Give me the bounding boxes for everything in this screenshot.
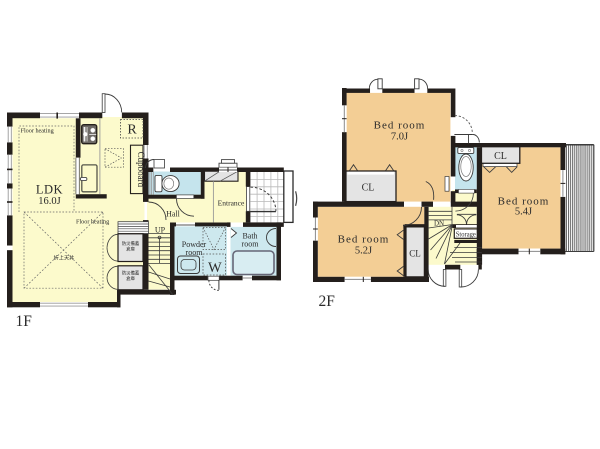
svg-text:CL: CL	[409, 249, 421, 259]
svg-text:2F: 2F	[319, 293, 336, 310]
svg-text:W: W	[208, 260, 222, 276]
svg-text:Hall: Hall	[166, 210, 181, 219]
svg-text:Floor heating: Floor heating	[21, 128, 54, 135]
svg-text:R: R	[127, 123, 137, 138]
svg-text:Storage: Storage	[456, 231, 476, 239]
svg-text:Cupboard: Cupboard	[136, 152, 146, 188]
svg-text:UP: UP	[155, 226, 166, 235]
svg-text:倉庫: 倉庫	[126, 246, 135, 253]
svg-text:折上天井: 折上天井	[54, 254, 75, 262]
svg-text:7.0J: 7.0J	[391, 132, 408, 143]
svg-text:Floor heating: Floor heating	[76, 219, 109, 226]
svg-text:LDK: LDK	[36, 182, 63, 196]
svg-text:CL: CL	[494, 151, 507, 162]
svg-text:DN: DN	[434, 220, 444, 228]
svg-text:Entrance: Entrance	[218, 199, 245, 208]
svg-text:room: room	[242, 240, 260, 249]
svg-text:5.2J: 5.2J	[355, 246, 372, 257]
svg-text:倉庫: 倉庫	[126, 275, 135, 282]
svg-text:room: room	[186, 248, 204, 257]
svg-text:16.0J: 16.0J	[38, 196, 60, 207]
svg-text:5.4J: 5.4J	[515, 207, 532, 218]
svg-text:CL: CL	[362, 183, 375, 194]
svg-text:1F: 1F	[16, 313, 33, 330]
svg-text:Bed room: Bed room	[374, 120, 426, 132]
svg-text:Bed room: Bed room	[338, 234, 390, 246]
